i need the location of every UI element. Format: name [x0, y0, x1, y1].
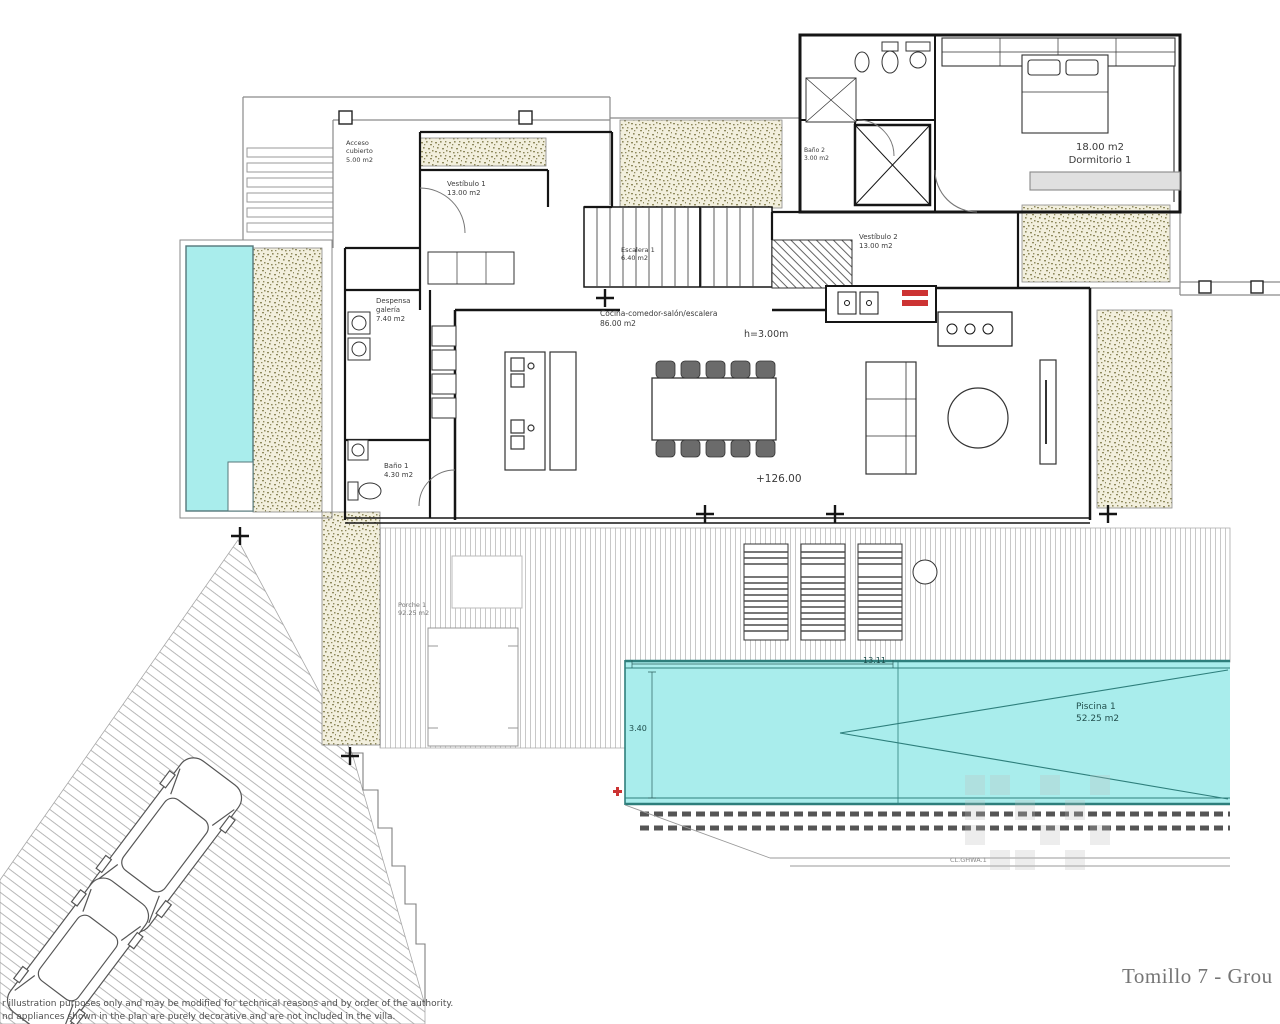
elevator-shaft — [855, 125, 930, 205]
round-table — [948, 388, 1008, 448]
dining-table — [652, 378, 776, 440]
kitchen-counter — [826, 286, 1012, 346]
lounger — [858, 544, 902, 640]
pool-apron — [625, 805, 1230, 866]
side-table — [913, 560, 937, 584]
label-bano2: Baño 2 3.00 m2 — [804, 147, 829, 163]
sink — [910, 52, 926, 68]
label-piscina1: Piscina 1 52.25 m2 — [1076, 702, 1119, 725]
pillow — [1028, 60, 1060, 75]
sofa — [866, 362, 916, 474]
kitchen-islands — [505, 352, 576, 470]
label-acceso: Acceso cubierto 5.00 m2 — [346, 139, 373, 164]
red-mark — [616, 787, 619, 796]
main-pool — [613, 660, 1230, 805]
door-arc — [419, 470, 455, 506]
label-plan-code: CL.GHWA.1 — [950, 856, 987, 864]
label-floor-level: +126.00 — [756, 473, 802, 487]
deck-feature-box — [452, 556, 522, 608]
label-escalera1: Escalera 1 6.40 m2 — [621, 246, 655, 263]
label-vestibulo1: Vestíbulo 1 13.00 m2 — [447, 180, 486, 198]
louver-steps — [247, 148, 333, 232]
label-porche1: Porche 1 92.25 m2 — [398, 601, 429, 618]
label-bano1: Baño 1 4.30 m2 — [384, 462, 413, 480]
toilet-tank — [882, 42, 898, 51]
stair-ramp — [772, 240, 852, 288]
cooktop-red — [902, 290, 928, 296]
bidet — [855, 52, 869, 72]
lounger — [801, 544, 845, 640]
sheet-title: Tomillo 7 - Grou — [1122, 964, 1273, 989]
vanity — [906, 42, 930, 51]
living-furniture — [866, 360, 1056, 474]
pool-step — [228, 462, 253, 511]
door-arc — [935, 170, 977, 212]
toilet — [359, 483, 381, 499]
pillow — [1066, 60, 1098, 75]
dining-set — [652, 361, 776, 457]
label-ceiling-height: h=3.00m — [744, 329, 788, 341]
tv-cabinet — [1040, 360, 1056, 464]
label-dormitorio1: 18.00 m2 Dormitorio 1 — [1050, 141, 1150, 167]
bench — [1030, 172, 1180, 190]
disclaimer-line-1: r illustration purposes only and may be … — [2, 999, 453, 1009]
disclaimer-line-2: nd appliances shown in the plan are pure… — [2, 1012, 395, 1022]
cooktop-red — [902, 300, 928, 306]
floor-plan-page: Acceso cubierto 5.00 m2 Vestíbulo 1 13.0… — [0, 0, 1280, 1024]
staircase — [584, 207, 772, 287]
label-cocina-salon: Cocina-comedor-salón/escalera 86.00 m2 — [600, 309, 717, 329]
toilet-tank — [348, 482, 358, 500]
toilet — [882, 51, 898, 73]
label-vestibulo2: Vestíbulo 2 13.00 m2 — [859, 233, 898, 251]
label-pool-length: 13.11 — [863, 656, 886, 666]
lounger — [744, 544, 788, 640]
label-despensa: Despensa galería 7.40 m2 — [376, 297, 410, 324]
label-pool-width: 3.40 — [629, 724, 647, 734]
deck-planter-box — [428, 628, 518, 746]
bedroom-furniture — [935, 38, 1180, 212]
